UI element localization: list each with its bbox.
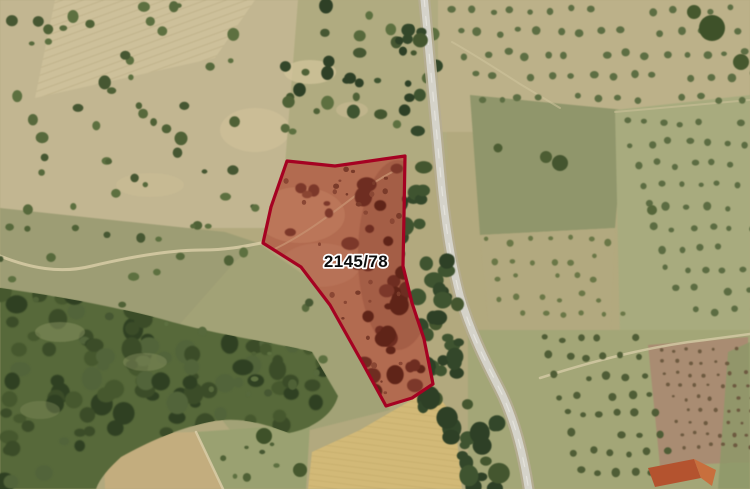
tree-dot [579,290,586,296]
tree-dot [366,336,370,340]
tree-dot [405,80,412,87]
tree-dot [744,370,748,374]
tree-dot [273,410,286,423]
tree-dot [151,372,170,390]
tree-dot [735,182,741,188]
tree-dot [698,349,702,353]
tree-dot [660,359,664,363]
tree-dot [351,170,355,173]
tree-dot [567,260,574,266]
tree-dot [12,90,22,102]
tree-dot [59,437,69,445]
tree-dot [99,75,111,89]
tree-dot [302,200,306,205]
tree-dot [46,253,56,262]
tree-dot [597,27,605,34]
tree-dot [281,124,290,133]
tree-dot [436,407,457,429]
tree-dot [590,277,597,283]
tree-dot [652,409,660,417]
tree-dot [602,371,610,380]
tree-dot [472,71,479,77]
tree-dot [711,309,719,317]
tree-dot [669,6,677,13]
tree-dot [507,240,514,247]
tree-dot [97,387,116,402]
tree-dot [354,30,366,41]
tree-dot [568,235,573,240]
tree-dot [325,208,333,218]
tree-dot [435,365,447,376]
tree-dot [505,48,513,55]
tree-dot [542,334,548,339]
tree-dot [363,211,368,215]
tree-dot [635,97,642,104]
tree-dot [462,399,473,409]
tree-dot [726,226,731,231]
tree-dot [395,37,404,45]
tree-dot [734,28,741,35]
tree-dot [411,126,425,136]
tree-dot [672,350,675,353]
tree-dot [393,120,401,128]
tree-dot [38,169,45,176]
tree-dot [227,28,239,41]
tree-dot [715,243,721,249]
tree-dot [72,225,79,231]
tree-dot [496,297,501,302]
tree-dot [390,218,395,224]
tree-dot [506,6,514,13]
tree-dot [280,61,291,72]
tree-dot [710,223,717,229]
tree-dot [543,311,550,316]
tree-dot [698,408,702,412]
tree-dot [557,298,562,302]
tree-dot [485,52,492,58]
tree-dot [603,52,612,59]
tree-dot [454,338,464,346]
tree-dot [659,181,666,187]
field-olive-smooth [470,95,625,235]
tree-dot [313,108,320,114]
tree-dot [404,93,414,102]
tree-dot [6,15,18,26]
tree-dot [356,202,362,207]
tree-dot [23,204,33,214]
tree-dot [513,94,521,101]
tree-dot [660,348,664,351]
tree-dot [484,237,488,241]
tree-dot [302,191,312,199]
tree-dot [314,369,320,376]
tree-dot [590,446,597,453]
tree-dot [527,74,534,81]
tree-dot [284,178,289,184]
tree-dot [704,139,711,146]
tree-dot [719,268,726,274]
tree-dot [229,116,240,127]
tree-dot [685,52,691,58]
tree-dot [285,228,296,236]
tree-dot [42,342,56,356]
tree-dot [672,285,679,291]
tree-dot [595,411,603,417]
tree-dot [672,395,675,397]
tree-dot [33,297,39,303]
tree-dot [380,326,396,344]
tree-dot [555,273,559,278]
tree-dot [33,16,44,27]
tree-dot [578,334,585,341]
tree-dot [672,164,678,170]
tree-dot [416,185,430,197]
tree-dot [162,124,172,133]
tree-dot [567,73,574,79]
tree-dot [629,391,637,400]
tree-dot [209,386,214,392]
tree-dot [558,28,565,35]
tree-dot [741,48,749,55]
tree-dot [399,104,411,116]
tree-dot [733,443,737,447]
tree-dot [442,430,460,445]
tree-dot [626,452,632,458]
tree-dot [693,306,699,312]
tree-dot [621,48,629,56]
tree-dot [157,26,167,36]
tree-dot [712,348,715,351]
tree-dot [383,188,388,194]
tree-dot [560,52,567,59]
tree-dot [739,97,746,104]
tree-dot [45,38,52,44]
tree-dot [70,203,76,210]
tree-dot [675,359,679,363]
tree-dot [176,253,185,260]
tree-dot [41,154,49,162]
tree-dot [649,8,657,16]
tree-dot [138,109,148,119]
tree-dot [120,51,130,60]
tree-dot [640,183,646,189]
aerial-map[interactable]: 2145/78 [0,0,750,489]
tree-dot [736,396,740,400]
tree-dot [621,374,629,382]
tree-dot [727,162,733,168]
tree-dot [658,246,666,254]
tree-dot [604,239,611,247]
tree-dot [396,213,402,219]
tree-dot [520,310,525,316]
tree-dot [704,51,713,59]
tree-dot [318,242,321,246]
tree-dot [687,75,694,82]
tree-dot [567,353,575,360]
tree-dot [684,347,688,350]
tree-dot [586,376,592,381]
tree-dot [683,205,689,210]
tree-dot [746,384,750,387]
tree-dot [362,311,373,323]
tree-dot [590,71,599,78]
tree-dot [691,225,698,231]
tree-dot [689,421,692,424]
tree-dot [472,27,481,36]
tree-dot [680,433,684,436]
tree-dot [669,228,675,233]
tree-dot [610,73,618,81]
tree-dot [708,159,714,165]
tree-dot [420,256,433,270]
tree-dot [6,295,28,313]
tree-dot [28,114,38,125]
tree-dot [169,1,179,12]
tree-dot [614,95,621,101]
tree-dot [353,93,360,102]
tree-dot [678,94,685,101]
tree-dot [321,66,333,80]
tree-dot [387,365,404,384]
tree-dot [107,420,124,436]
tree-dot [737,409,741,412]
tree-dot [338,180,341,182]
tree-dot [150,118,157,126]
tree-dot [128,74,133,80]
tree-dot [718,434,722,438]
tree-dot [96,348,115,365]
tree-dot [706,432,709,435]
tree-dot [688,374,692,378]
tree-dot [309,395,323,411]
tree-dot [341,237,359,250]
tree-dot [500,97,505,103]
tree-dot [289,128,297,134]
tree-dot [568,5,574,11]
tree-dot [205,224,212,229]
tree-dot [567,428,575,437]
tree-dot [686,138,694,144]
tree-dot [130,174,138,183]
tree-dot [697,93,705,99]
tree-dot [704,421,708,425]
tree-dot [630,408,638,416]
tree-dot [355,291,360,295]
tree-dot [138,2,150,12]
tree-dot [24,226,30,232]
tree-dot [355,78,364,87]
tree-dot [556,395,562,400]
tree-dot [80,407,96,423]
field-grove-right [615,95,750,338]
tree-dot [575,29,584,37]
tree-dot [682,446,685,450]
tree-dot [329,292,334,298]
tree-dot [656,30,663,37]
tree-dot [374,78,381,84]
tree-dot [59,25,67,31]
tree-dot [302,69,310,76]
tree-dot [414,219,426,230]
tree-dot [233,474,238,479]
tree-dot [612,468,621,477]
tree-dot [293,83,306,97]
tree-dot [715,97,722,104]
tree-dot [617,352,623,359]
tree-dot [497,32,504,38]
tree-dot [627,143,632,148]
tree-dot [691,284,698,291]
tree-dot [379,284,394,297]
tree-dot [649,141,656,148]
tree-dot [731,306,738,312]
tree-dot [184,359,199,375]
tree-dot [582,355,590,362]
tree-dot [624,117,631,123]
tree-dot [727,421,731,424]
tree-dot [215,374,235,392]
tree-dot [399,362,403,365]
tree-dot [415,161,432,173]
tree-dot [380,380,382,382]
tree-dot [190,224,195,229]
tree-dot [663,372,666,375]
tree-dot [143,182,148,187]
tree-dot [643,447,651,455]
tree-dot [592,254,597,259]
tree-dot [232,359,253,375]
tree-dot [173,148,183,158]
tree-dot [155,237,162,242]
tree-dot [642,373,648,378]
tree-dot [5,224,14,231]
tree-dot [725,206,730,211]
tree-dot [707,9,713,15]
tree-dot [632,468,640,476]
tree-dot [661,202,669,211]
tree-dot [717,374,720,377]
tree-dot [646,392,652,397]
tree-dot [22,420,35,432]
tree-dot [589,237,595,242]
tree-dot [244,446,248,449]
tree-dot [632,334,639,341]
tree-dot [346,193,349,196]
tree-dot [167,392,189,415]
tree-dot [107,87,116,94]
tree-dot [341,317,344,320]
tree-dot [397,292,401,297]
tree-dot [664,447,672,454]
tree-dot [65,391,83,408]
tree-dot [728,74,737,83]
tree-dot [427,311,440,324]
tree-dot [243,473,251,482]
tree-dot [205,63,214,71]
tree-dot [92,121,100,130]
tree-dot [728,371,732,375]
tree-dot [685,268,691,274]
tree-dot [636,433,643,438]
tree-dot [239,247,248,257]
tree-dot [480,457,492,466]
tree-dot [391,164,403,174]
tree-dot [468,6,475,14]
tree-dot [320,29,330,37]
tree-dot [488,72,496,79]
tree-dot [641,119,647,124]
tree-dot [739,267,746,273]
tree-dot [678,383,682,387]
tree-dot [678,27,686,35]
tree-dot [175,132,188,146]
tree-dot [741,142,747,149]
tree-dot [547,8,554,15]
tree-dot [368,280,373,285]
tree-dot [470,422,490,444]
tree-dot [495,277,501,282]
tree-dot [636,354,642,360]
tree-dot [640,52,649,60]
tree-dot [84,426,95,436]
tree-dot [374,200,386,211]
tree-dot [104,232,111,238]
tree-dot [614,409,621,416]
satellite-canvas: 2145/78 [0,0,750,489]
tree-dot [179,102,189,110]
tree-dot [648,72,655,78]
tree-dot [695,119,702,126]
tree-dot [702,267,709,274]
tree-dot [587,6,595,13]
tree-dot [0,408,12,418]
tree-dot [220,193,231,201]
tree-dot [679,181,684,187]
tree-dot [706,384,709,386]
tree-dot [451,297,464,311]
tree-dot [699,362,702,365]
tree-dot [728,4,734,10]
tree-dot [251,376,259,381]
tree-dot [214,407,226,421]
tree-dot [552,259,558,266]
tree-dot [635,162,642,170]
tree-dot [288,379,297,390]
tree-dot [714,360,717,363]
tree-dot [577,466,585,473]
tree-dot [696,244,703,251]
tree-dot [429,394,440,406]
tree-dot [545,52,552,59]
bare-patch [220,108,290,152]
tree-dot [383,236,393,246]
tree-dot [324,201,331,206]
tree-dot [353,48,366,58]
tree-dot [721,384,725,388]
tree-dot [699,183,704,187]
tree-dot [580,412,586,417]
tree-dot [599,352,606,359]
tree-dot [631,70,639,78]
tree-dot [701,374,705,378]
tree-dot [384,303,392,309]
tree-dot [458,28,464,33]
tree-dot [6,317,19,328]
tree-dot [570,450,577,457]
tree-dot [414,89,426,102]
tree-dot [727,410,730,413]
tree-dot [220,455,226,461]
